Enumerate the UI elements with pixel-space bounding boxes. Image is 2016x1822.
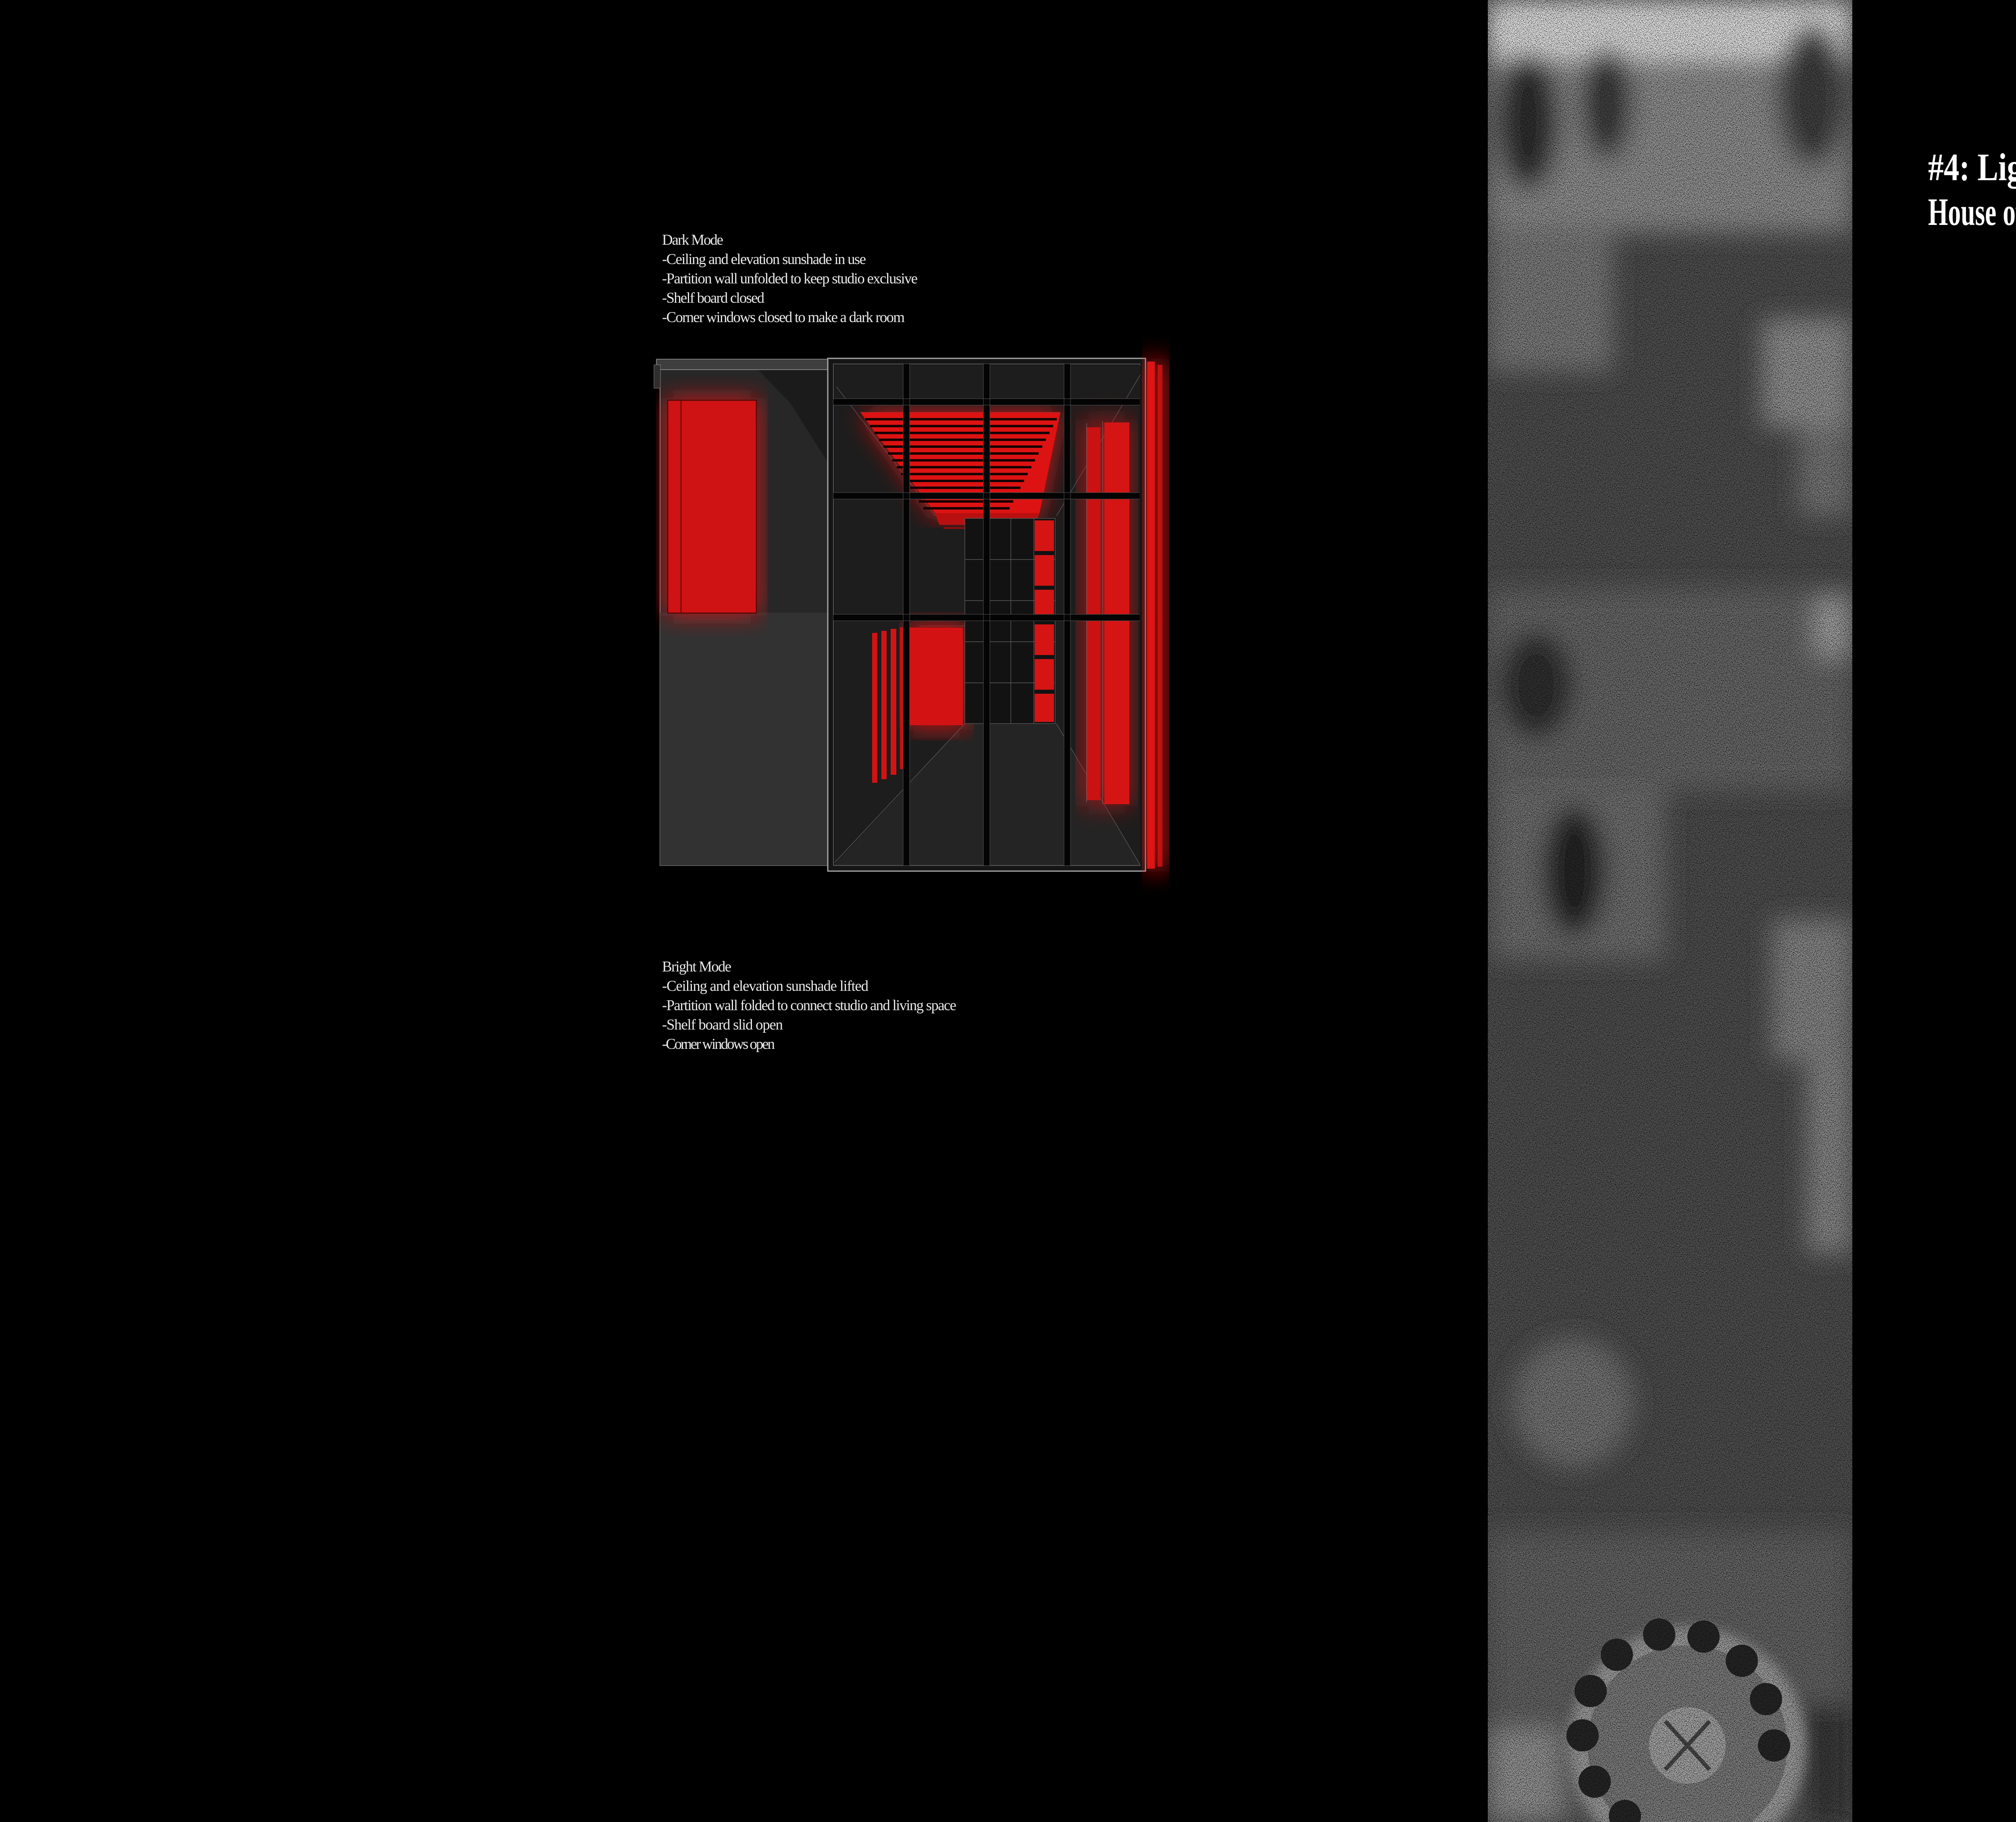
- svg-text:-Shelf board closed: -Shelf board closed: [662, 290, 765, 306]
- svg-text:#4: Lighting: #4: Lighting: [1928, 146, 2016, 189]
- svg-text:-Partition wall folded to conn: -Partition wall folded to connect studio…: [662, 997, 956, 1014]
- svg-text:-Ceiling and elevation sunshad: -Ceiling and elevation sunshade in use: [662, 251, 866, 268]
- svg-text:-Ceiling and elevation sunshad: -Ceiling and elevation sunshade lifted: [662, 978, 869, 994]
- svg-text:-Corner windows open: -Corner windows open: [662, 1036, 775, 1052]
- svg-text:-Partition wall unfolded to ke: -Partition wall unfolded to keep studio …: [662, 270, 918, 287]
- svg-text:House of Photographers: House of Photographers: [1928, 190, 2016, 233]
- svg-text:-Shelf board slid open: -Shelf board slid open: [662, 1017, 783, 1033]
- svg-text:Dark Mode: Dark Mode: [662, 232, 723, 248]
- svg-text:Bright Mode: Bright Mode: [662, 959, 731, 975]
- svg-text:-Corner windows closed to make: -Corner windows closed to make a dark ro…: [662, 309, 905, 326]
